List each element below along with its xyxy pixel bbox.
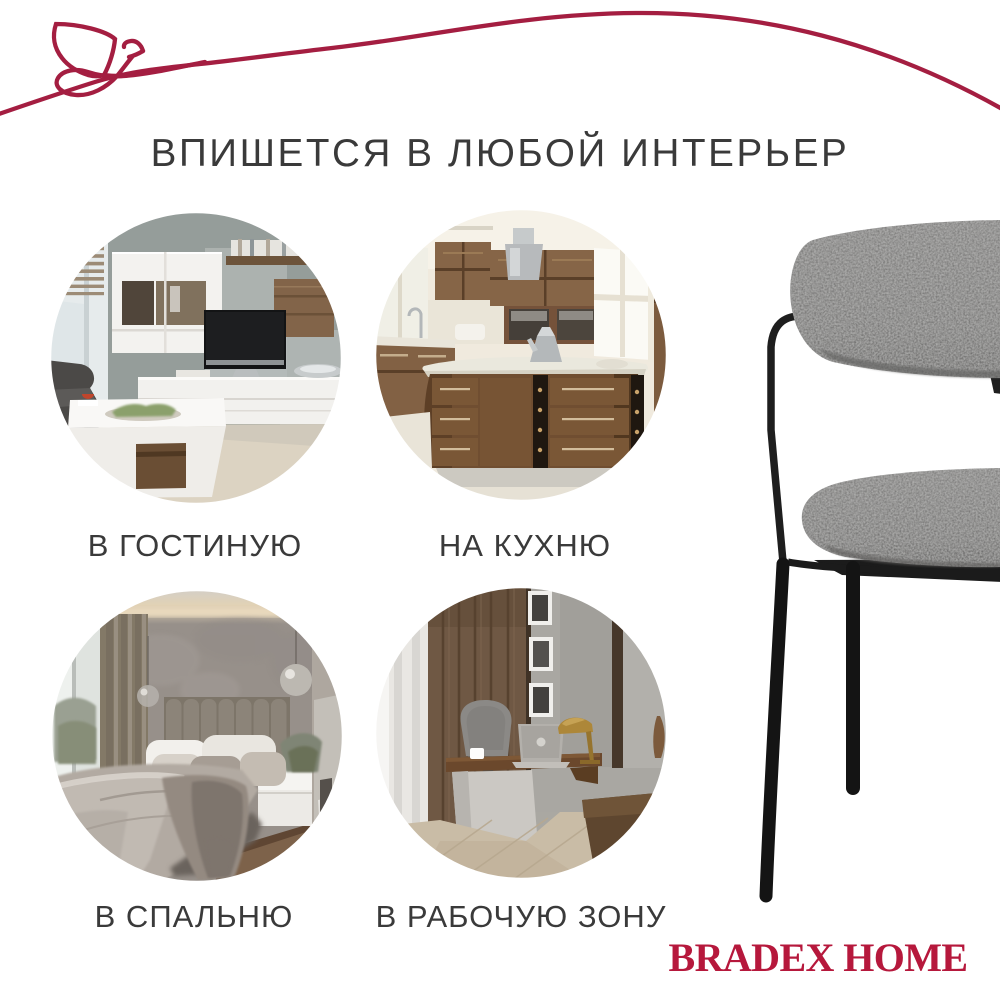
svg-text:В РАБОЧУЮ ЗОНУ: В РАБОЧУЮ ЗОНУ [376, 899, 667, 934]
svg-text:BRADEX HOME: BRADEX HOME [669, 935, 968, 980]
svg-text:В СПАЛЬНЮ: В СПАЛЬНЮ [95, 899, 294, 934]
svg-text:ВПИШЕТСЯ В ЛЮБОЙ ИНТЕРЬЕР: ВПИШЕТСЯ В ЛЮБОЙ ИНТЕРЬЕР [151, 131, 850, 175]
svg-text:НА КУХНЮ: НА КУХНЮ [439, 528, 611, 563]
svg-text:В ГОСТИНУЮ: В ГОСТИНУЮ [88, 528, 302, 563]
